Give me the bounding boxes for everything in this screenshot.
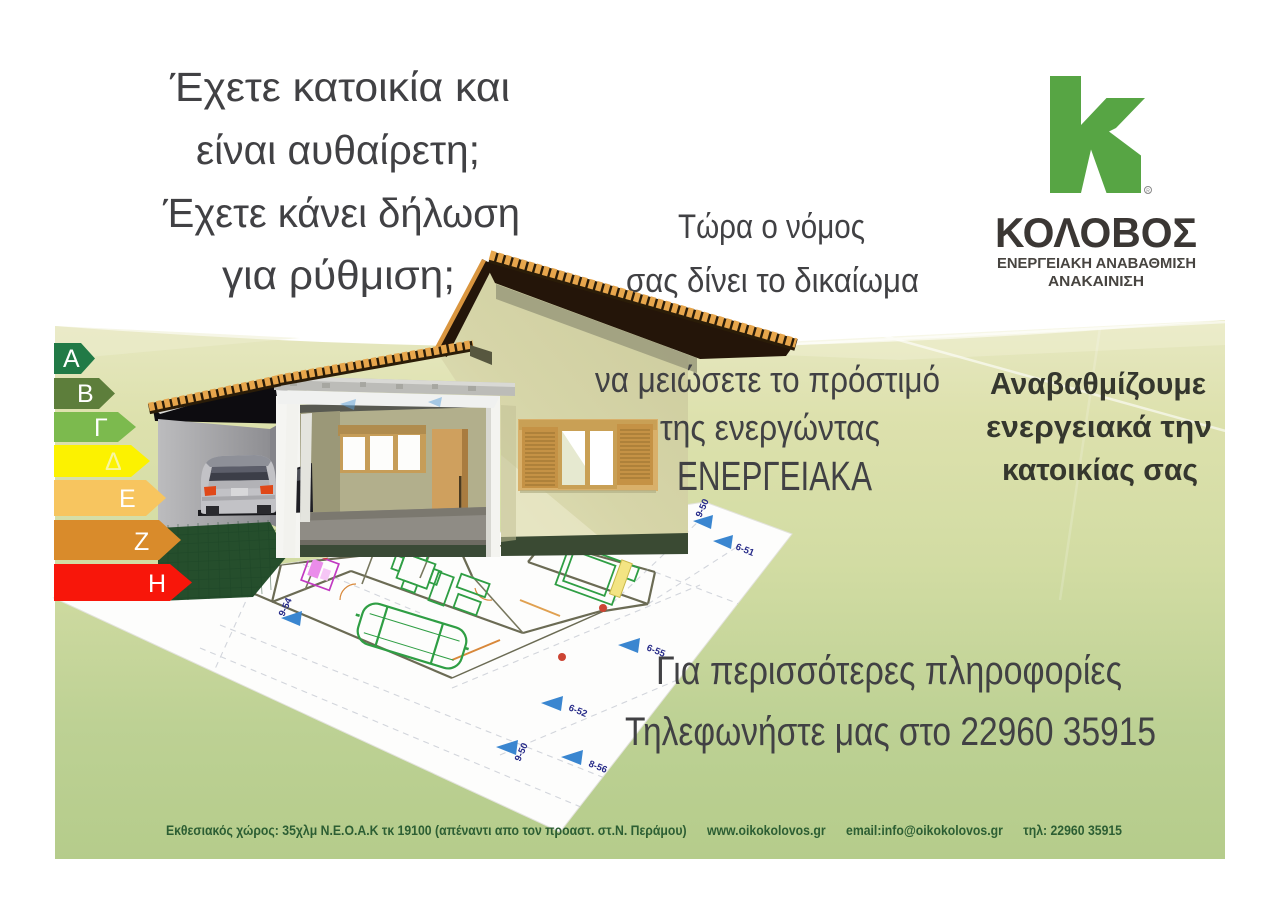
svg-text:Αναβαθμίζουμε: Αναβαθμίζουμε [990,366,1206,401]
svg-text:Ε: Ε [119,485,136,513]
svg-text:R: R [1146,189,1150,195]
svg-text:Δ: Δ [105,448,122,476]
svg-text:Τηλεφωνήστε μας στο 22960 3591: Τηλεφωνήστε μας στο 22960 35915 [625,710,1156,754]
svg-text:να μειώσετε το πρόστιμό: να μειώσετε το πρόστιμό [595,359,940,400]
svg-text:είναι αυθαίρετη;: είναι αυθαίρετη; [196,127,480,173]
svg-text:Τώρα ο νόμος: Τώρα ο νόμος [678,208,865,246]
svg-text:κατοικίας σας: κατοικίας σας [1002,452,1198,487]
svg-text:της ενεργώντας: της ενεργώντας [660,407,880,448]
svg-text:για ρύθμιση;: για ρύθμιση; [222,252,455,298]
svg-text:Ζ: Ζ [134,528,149,556]
svg-text:B: B [77,380,94,408]
svg-text:Εκθεσιακός χώρος: 35χλμ Ν.Ε.Ο.: Εκθεσιακός χώρος: 35χλμ Ν.Ε.Ο.Α.Κ τκ 191… [166,822,1122,838]
svg-text:Έχετε κατοικία και: Έχετε κατοικία και [169,64,510,110]
svg-text:ΚΟΛΟΒΟΣ: ΚΟΛΟΒΟΣ [995,209,1197,256]
svg-text:Για περισσότερες πληροφορίες: Για περισσότερες πληροφορίες [656,649,1122,693]
svg-text:ΕΝΕΡΓΕΙΑΚΗ ΑΝΑΒΑΘΜΙΣΗ: ΕΝΕΡΓΕΙΑΚΗ ΑΝΑΒΑΘΜΙΣΗ [997,255,1196,272]
svg-text:Η: Η [148,570,166,598]
svg-text:σας δίνει το δικαίωμα: σας δίνει το δικαίωμα [626,262,919,300]
svg-text:A: A [63,345,80,373]
svg-text:ΕΝΕΡΓΕΙΑΚΑ: ΕΝΕΡΓΕΙΑΚΑ [677,453,872,499]
svg-text:ΑΝΑΚΑΙΝΙΣΗ: ΑΝΑΚΑΙΝΙΣΗ [1048,273,1144,290]
svg-text:Γ: Γ [94,414,108,442]
svg-text:Έχετε κάνει δήλωση: Έχετε κάνει δήλωση [162,190,520,236]
svg-text:ενεργειακά την: ενεργειακά την [986,409,1212,444]
